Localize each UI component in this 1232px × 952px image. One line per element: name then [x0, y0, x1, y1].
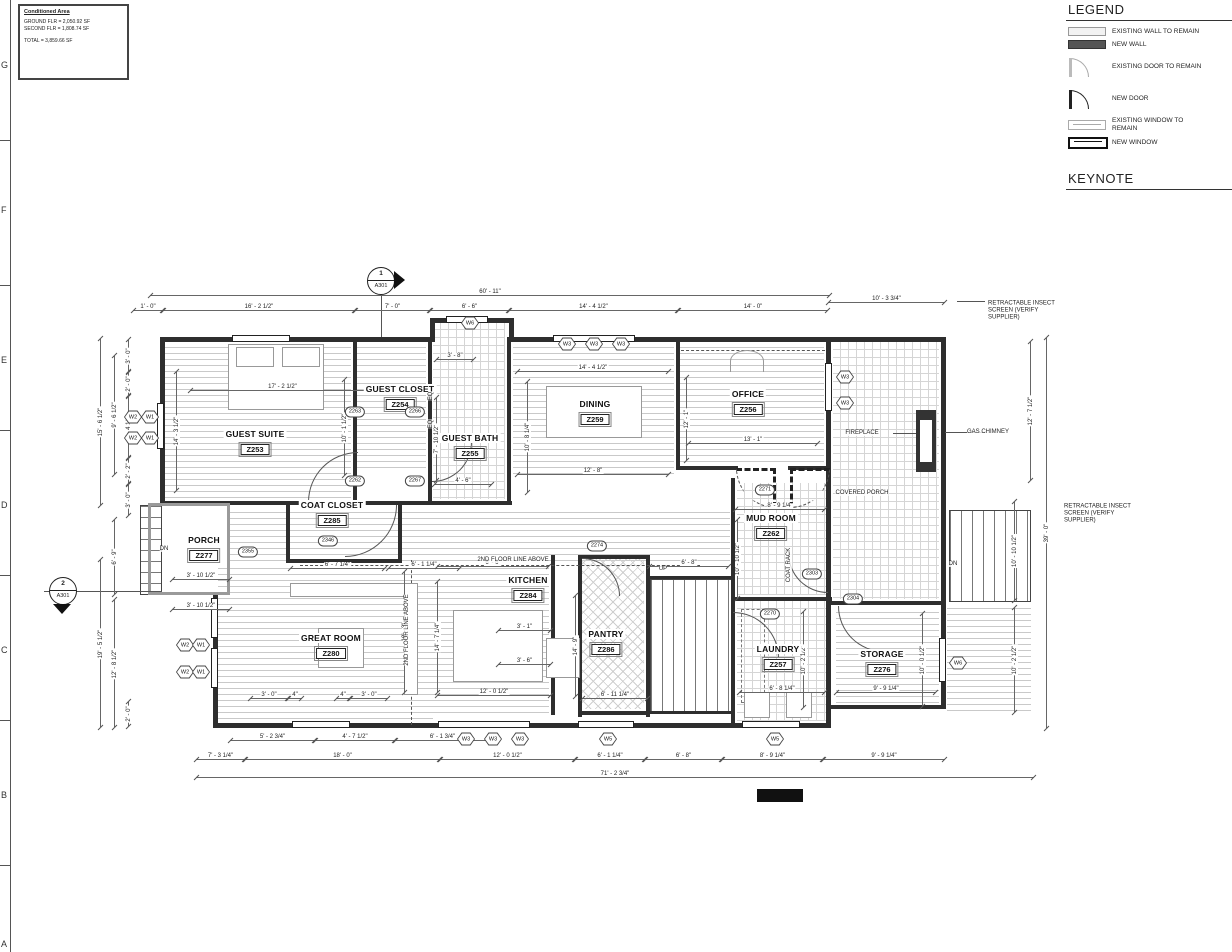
dimension: 6' - 6" [430, 303, 509, 311]
window-symbol [438, 721, 530, 728]
dimension: 3' - 10 1/2" [172, 602, 230, 610]
floor-plan: 60' - 11"1' - 0"16' - 2 1/2"7' - 0"6' - … [0, 0, 1232, 952]
grid-letter-a: A [1, 939, 7, 949]
window-tag-text: W5 [600, 734, 616, 745]
window-tag: W2 [176, 666, 194, 679]
grid-tick [0, 430, 10, 431]
section-marker-sheet: A301 [368, 281, 394, 292]
dimension-text: 10' - 0 1/2" [920, 645, 926, 676]
wall [648, 711, 735, 714]
annotation: EQ [428, 392, 434, 401]
dimension: 14' - 3 1/2" [176, 372, 178, 490]
room-number: Z280 [316, 648, 345, 659]
room-name: LAUNDRY [755, 644, 802, 654]
dimension-text: 3' - 1" [516, 624, 533, 630]
dimension-text: 17' - 2 1/2" [267, 384, 298, 390]
dimension: 4" [336, 691, 350, 699]
section-marker-number: 2 [50, 578, 76, 591]
room-label-office: OFFICEZ256 [730, 389, 766, 417]
dimension-text: 3' - 0" [126, 347, 132, 364]
furniture [282, 347, 320, 367]
dimension: 3' - 0" [250, 691, 288, 699]
wall [148, 503, 230, 506]
dimension-text: 12' - 8 1/2" [112, 648, 118, 679]
wall [160, 337, 432, 342]
dimension-text: 8' - 9 1/4" [766, 503, 793, 509]
keynote-tag: 2303 [802, 569, 822, 580]
room-name: PORCH [186, 535, 222, 545]
grid-tick [0, 140, 10, 141]
room-label-mud-room: MUD ROOMZ262 [744, 513, 798, 541]
dimension: 14' - 9" [575, 596, 577, 696]
room-name: COAT CLOSET [299, 500, 366, 510]
grid-tick [0, 865, 10, 866]
drawing-sheet: Conditioned Area GROUND FLR = 2,050.92 S… [0, 0, 1232, 952]
dimension-text: 4" [291, 692, 298, 698]
dimension: 10' - 10 1/2" [1014, 502, 1016, 600]
wall [648, 576, 735, 579]
dimension: 5' - 2 3/4" [230, 733, 315, 741]
window-tag-text: W3 [485, 734, 501, 745]
dimension-text: 14' - 0" [743, 304, 764, 310]
room-number: Z262 [756, 528, 785, 539]
annotation: UP [659, 566, 667, 572]
dimension: 9' - 6 1/2" [114, 356, 116, 474]
dimension: 10' - 1 1/2" [344, 380, 346, 475]
dimension-text: 15' - 6 1/2" [98, 407, 104, 438]
room-label-guest-closet: GUEST CLOSETZ254 [364, 384, 437, 412]
dimension: 12' - 8" [517, 467, 669, 475]
dimension-text: 9' - 9 1/4" [870, 753, 897, 759]
dimension: 3' - 1" [498, 623, 551, 631]
dimension-text: 6' - 8 1/4" [768, 686, 795, 692]
dimension-text: 12' - 7 1/2" [1028, 396, 1034, 427]
window-tag-text: W3 [613, 339, 629, 350]
grid-tick [0, 720, 10, 721]
dimension-text: 2' - 0" [126, 375, 132, 392]
wall [507, 337, 511, 505]
room-number: Z285 [317, 515, 346, 526]
annotation: DN [949, 561, 958, 567]
dimension: 39' - 0" [1046, 338, 1048, 728]
section-marker-1: 1A301 [367, 267, 395, 295]
section-marker-2: 2A301 [49, 577, 77, 605]
dimension-text: 12' - 8" [583, 468, 604, 474]
dimension-text: 4" [339, 692, 346, 698]
room-name: OFFICE [730, 389, 766, 399]
window-tag: W2 [176, 639, 194, 652]
dimension: 10' - 0 1/2" [922, 614, 924, 706]
window-tag: W5 [766, 733, 784, 746]
wall [941, 337, 946, 610]
dimension: 8' - 9 1/4" [735, 502, 825, 510]
dimension: 6' - 8" [645, 752, 722, 760]
keynote-tag: 2267 [405, 476, 425, 487]
scale-bar [757, 789, 803, 802]
dimension-text: 18' - 0" [332, 753, 353, 759]
dimension: 12' - 1" [686, 378, 688, 460]
room-label-guest-bath: GUEST BATHZ255 [440, 433, 501, 461]
dimension-text: 3' - 10 1/2" [186, 603, 217, 609]
window-symbol [211, 648, 218, 688]
room-number: Z256 [733, 404, 762, 415]
wall [578, 711, 650, 715]
dimension-text: 6' - 8" [675, 753, 692, 759]
window-tag-text: W3 [458, 734, 474, 745]
dimension: 10' - 3 3/4" [828, 295, 945, 303]
dimension: 15' - 6 1/2" [100, 339, 102, 505]
window-symbol [742, 721, 800, 728]
dimension: 3' - 0" [128, 340, 130, 371]
section-marker-arrow-icon [53, 604, 71, 614]
dimension: 6' - 9" [114, 520, 116, 594]
dimension: 1' - 0" [133, 303, 163, 311]
window-tag-text: W1 [142, 412, 158, 423]
dimension-text: 13' - 1" [743, 437, 764, 443]
window-tag-text: W1 [193, 640, 209, 651]
annotation: RETRACTABLE INSECT SCREEN (VERIFY SUPPLI… [1064, 504, 1131, 525]
room-name: KITCHEN [506, 575, 549, 585]
room-number: Z255 [455, 448, 484, 459]
dimension-text: 10' - 10 1/2" [735, 542, 741, 576]
dimension-text: 39' - 0" [1044, 523, 1050, 544]
dimension-text: 10' - 10 1/2" [1012, 534, 1018, 568]
dimension-text: 6' - 1 1/4" [410, 562, 437, 568]
dimension-text: 10' - 2 1/2" [801, 644, 807, 675]
wall [676, 337, 680, 470]
dimension-text: 14' - 9" [573, 636, 579, 657]
dimension-text: 14' - 4 1/2" [578, 304, 609, 310]
dimension: 3' - 6" [498, 657, 551, 665]
window-tag: W5 [599, 733, 617, 746]
dimension: 4' - 6" [434, 477, 492, 485]
annotation: GAS CHIMNEY [967, 429, 1009, 435]
keynote-tag: 2271 [755, 485, 775, 496]
dimension: 4" [288, 691, 302, 699]
office-niche [730, 350, 764, 372]
dimension: 2' - 2" [128, 459, 130, 483]
annotation: 2ND FLOOR LINE ABOVE [477, 557, 548, 563]
dimension: 2' - 0" [128, 702, 130, 726]
window-tag-text: W2 [177, 667, 193, 678]
dimension-text: 2' - 2" [126, 462, 132, 479]
keynote-tag: 2266 [405, 407, 425, 418]
wall [398, 503, 402, 563]
grid-letter-c: C [1, 645, 8, 655]
dimension-text: 6' - 1 3/4" [429, 734, 456, 740]
window-tag-text: W6 [462, 318, 478, 329]
dimension: 10' - 10 1/2" [737, 520, 739, 598]
annotation: EQ [428, 420, 434, 429]
room-label-guest-suite: GUEST SUITEZ253 [224, 429, 287, 457]
wall [551, 555, 555, 715]
wall [957, 301, 985, 302]
dimension-text: 2' - 0" [126, 705, 132, 722]
room-name: GUEST BATH [440, 433, 501, 443]
window-tag-text: W1 [193, 667, 209, 678]
dimension: 3' - 10 1/2" [172, 572, 230, 580]
dimension-text: 12' - 0 1/2" [479, 689, 510, 695]
room-label-porch: PORCHZ277 [186, 535, 222, 563]
dimension: 7' - 0" [355, 303, 430, 311]
dimension: 4' - 7 1/2" [315, 733, 395, 741]
keynote-tag: 2262 [345, 476, 365, 487]
dimension-text: 6' - 7 1/4" [324, 562, 351, 568]
window-tag-text: W3 [837, 372, 853, 383]
dimension-text: 14' - 7 1/4" [435, 622, 441, 653]
dimension-text: 5' - 2 3/4" [259, 734, 286, 740]
dimension: 7' - 3 1/4" [196, 752, 245, 760]
dimension: 10' - 2 1/2" [803, 612, 805, 707]
dimension: 19' - 5 1/2" [100, 560, 102, 727]
window-tag-text: W3 [512, 734, 528, 745]
grid-letter-g: G [1, 60, 8, 70]
wall [148, 592, 230, 595]
window-tag-text: W5 [767, 734, 783, 745]
dimension-text: 4' - 6" [454, 478, 471, 484]
window-tag: W1 [192, 639, 210, 652]
room-number: Z253 [240, 444, 269, 455]
keynote-tag: 2263 [345, 407, 365, 418]
dimension-text: 1' - 0" [139, 304, 156, 310]
window-tag: W3 [511, 733, 529, 746]
room-label-storage: STORAGEZ276 [858, 649, 905, 677]
wall [148, 503, 151, 595]
grid-letter-d: D [1, 500, 8, 510]
wall [830, 337, 945, 342]
dimension-text: 10' - 2 1/2" [1012, 645, 1018, 676]
keynote-tag: 2346 [318, 536, 338, 547]
room-name: MUD ROOM [744, 513, 798, 523]
dimension: 14' - 0" [678, 303, 828, 311]
dimension-text: 3' - 0" [260, 692, 277, 698]
wall [286, 503, 290, 563]
dimension: 13' - 1" [688, 436, 818, 444]
room-number: Z286 [591, 644, 620, 655]
room-number: Z284 [513, 590, 542, 601]
wall [731, 478, 735, 728]
dimension-text: 71' - 2 3/4" [600, 771, 631, 777]
room-name: GUEST SUITE [224, 429, 287, 439]
exterior-stair [949, 510, 1031, 602]
window-tag-text: W3 [559, 339, 575, 350]
dimension-text: 12' - 1" [684, 409, 690, 430]
dimension-text: 10' - 8 1/4" [525, 422, 531, 453]
dimension-text: 19' - 5 1/2" [98, 628, 104, 659]
dimension-text: 9' - 6 1/2" [112, 401, 118, 428]
room-number: Z259 [580, 414, 609, 425]
annotation: FIREPLACE [845, 430, 878, 436]
room-name: GREAT ROOM [299, 633, 363, 643]
dimension: 3' - 0" [350, 691, 388, 699]
dimension-text: 6' - 9" [112, 548, 118, 565]
room-label-dining: DININGZ259 [578, 399, 613, 427]
dimension-text: 14' - 4 1/2" [578, 365, 609, 371]
wall [676, 466, 738, 470]
dimension: 6' - 7 1/4" [290, 561, 385, 569]
room-label-pantry: PANTRYZ286 [586, 629, 625, 657]
dimension: 12' - 0 1/2" [437, 688, 551, 696]
window-tag-text: W3 [837, 398, 853, 409]
furniture [236, 347, 274, 367]
dimension: 9' - 9 1/4" [823, 752, 945, 760]
room-name: DINING [578, 399, 613, 409]
dimension-text: 3' - 10 1/2" [186, 573, 217, 579]
wall [731, 597, 832, 601]
dimension-text: 14' - 3 1/2" [174, 416, 180, 447]
dimension: 9' - 9 1/4" [836, 685, 936, 693]
dimension: 12' - 8 1/2" [114, 600, 116, 727]
grid-tick [0, 285, 10, 286]
window-symbol [578, 721, 634, 728]
interior-stair [650, 579, 735, 712]
dimension: 5' - 4 1/2" [128, 397, 130, 457]
window-symbol [292, 721, 350, 728]
annotation: DN [160, 546, 169, 552]
fireplace-inner [920, 420, 932, 462]
dimension: 14' - 4 1/2" [517, 364, 669, 372]
dimension-text: 6' - 1 1/4" [596, 753, 623, 759]
window-tag-text: W3 [586, 339, 602, 350]
dimension-text: 7' - 0" [384, 304, 401, 310]
dimension: 7' - 10 1/2" [436, 398, 438, 480]
dimension: 3' - 0" [128, 485, 130, 515]
window-tag-text: W2 [125, 412, 141, 423]
dimension: 6' - 1 3/4" [395, 733, 490, 741]
dimension: 12' - 0 1/2" [440, 752, 575, 760]
dimension-text: 3' - 0" [360, 692, 377, 698]
dimension: 16' - 2 1/2" [163, 303, 355, 311]
furniture [786, 692, 812, 718]
room-label-laundry: LAUNDRYZ257 [755, 644, 802, 672]
window-tag: W1 [192, 666, 210, 679]
dimension: 71' - 2 3/4" [196, 770, 1034, 778]
dimension: 3' - 8" [436, 352, 474, 360]
dimension: 8' - 9 1/4" [722, 752, 823, 760]
dimension-text: 4' - 7 1/2" [341, 734, 368, 740]
furniture [744, 692, 770, 718]
grid-tick [0, 575, 10, 576]
dimension-text: 12' - 0 1/2" [492, 753, 523, 759]
dimension: 14' - 7 1/4" [437, 582, 439, 692]
window-symbol [939, 638, 946, 682]
window-tag-text: W2 [125, 433, 141, 444]
dimension: 17' - 2 1/2" [190, 383, 375, 391]
section-marker-arrow-icon [394, 271, 405, 289]
dimension-text: 6' - 11 1/4" [600, 692, 630, 698]
annotation: 2ND FLOOR LINE ABOVE [404, 594, 410, 665]
dimension-text: 10' - 3 3/4" [871, 296, 902, 302]
window-symbol [232, 335, 290, 342]
section-marker-sheet: A301 [50, 591, 76, 602]
dimension-text: 8' - 9 1/4" [759, 753, 786, 759]
dimension: 60' - 11" [150, 288, 830, 296]
room-label-great-room: GREAT ROOMZ280 [299, 633, 363, 661]
annotation: COAT RACK [786, 548, 792, 582]
dimension-text: 3' - 6" [516, 658, 533, 664]
room-name: GUEST CLOSET [364, 384, 437, 394]
dimension: 18' - 0" [245, 752, 440, 760]
room-number: Z277 [189, 550, 218, 561]
room-label-kitchen: KITCHENZ284 [506, 575, 549, 603]
dimension: 6' - 1 1/4" [575, 752, 645, 760]
room-name: PANTRY [586, 629, 625, 639]
wall [831, 705, 943, 709]
dimension-text: 6' - 6" [461, 304, 478, 310]
dimension: 2' - 0" [128, 373, 130, 395]
dimension-text: 3' - 0" [126, 491, 132, 508]
window-tag-text: W2 [177, 640, 193, 651]
room-label-coat-closet: COAT CLOSETZ285 [299, 500, 366, 528]
annotation: COVERED PORCH [835, 490, 888, 496]
window-tag-text: W1 [142, 433, 158, 444]
grid-letter-f: F [1, 205, 7, 215]
dimension: 12' - 7 1/2" [1030, 342, 1032, 480]
keynote-tag: 2270 [760, 609, 780, 620]
dimension: 6' - 8 1/4" [739, 685, 825, 693]
section-marker-number: 1 [368, 268, 394, 281]
room-number: Z257 [763, 659, 792, 670]
room-number: Z276 [867, 664, 896, 675]
dimension-text: 3' - 8" [446, 353, 463, 359]
dimension-text: 7' - 3 1/4" [207, 753, 234, 759]
dimension-text: 16' - 2 1/2" [244, 304, 275, 310]
furniture [290, 583, 418, 597]
dimension: 10' - 8 1/4" [527, 382, 529, 492]
dimension-text: 60' - 11" [478, 289, 502, 295]
window-tag-text: W6 [950, 658, 966, 669]
window-symbol [157, 403, 164, 449]
dimension: 6' - 11 1/4" [582, 691, 648, 699]
furniture [453, 610, 543, 682]
annotation: RETRACTABLE INSECT SCREEN (VERIFY SUPPLI… [988, 301, 1055, 322]
room-name: STORAGE [858, 649, 905, 659]
grid-letter-b: B [1, 790, 7, 800]
dimension-text: 9' - 9 1/4" [872, 686, 899, 692]
grid-letter-e: E [1, 355, 7, 365]
dimension-text: 6' - 8" [680, 560, 697, 566]
window-symbol [825, 363, 832, 411]
keynote-tag: 2355 [238, 547, 258, 558]
dimension: 14' - 4 1/2" [509, 303, 678, 311]
dimension: 10' - 2 1/2" [1014, 608, 1016, 712]
keynote-tag: 2304 [843, 594, 863, 605]
keynote-tag: 2274 [587, 541, 607, 552]
